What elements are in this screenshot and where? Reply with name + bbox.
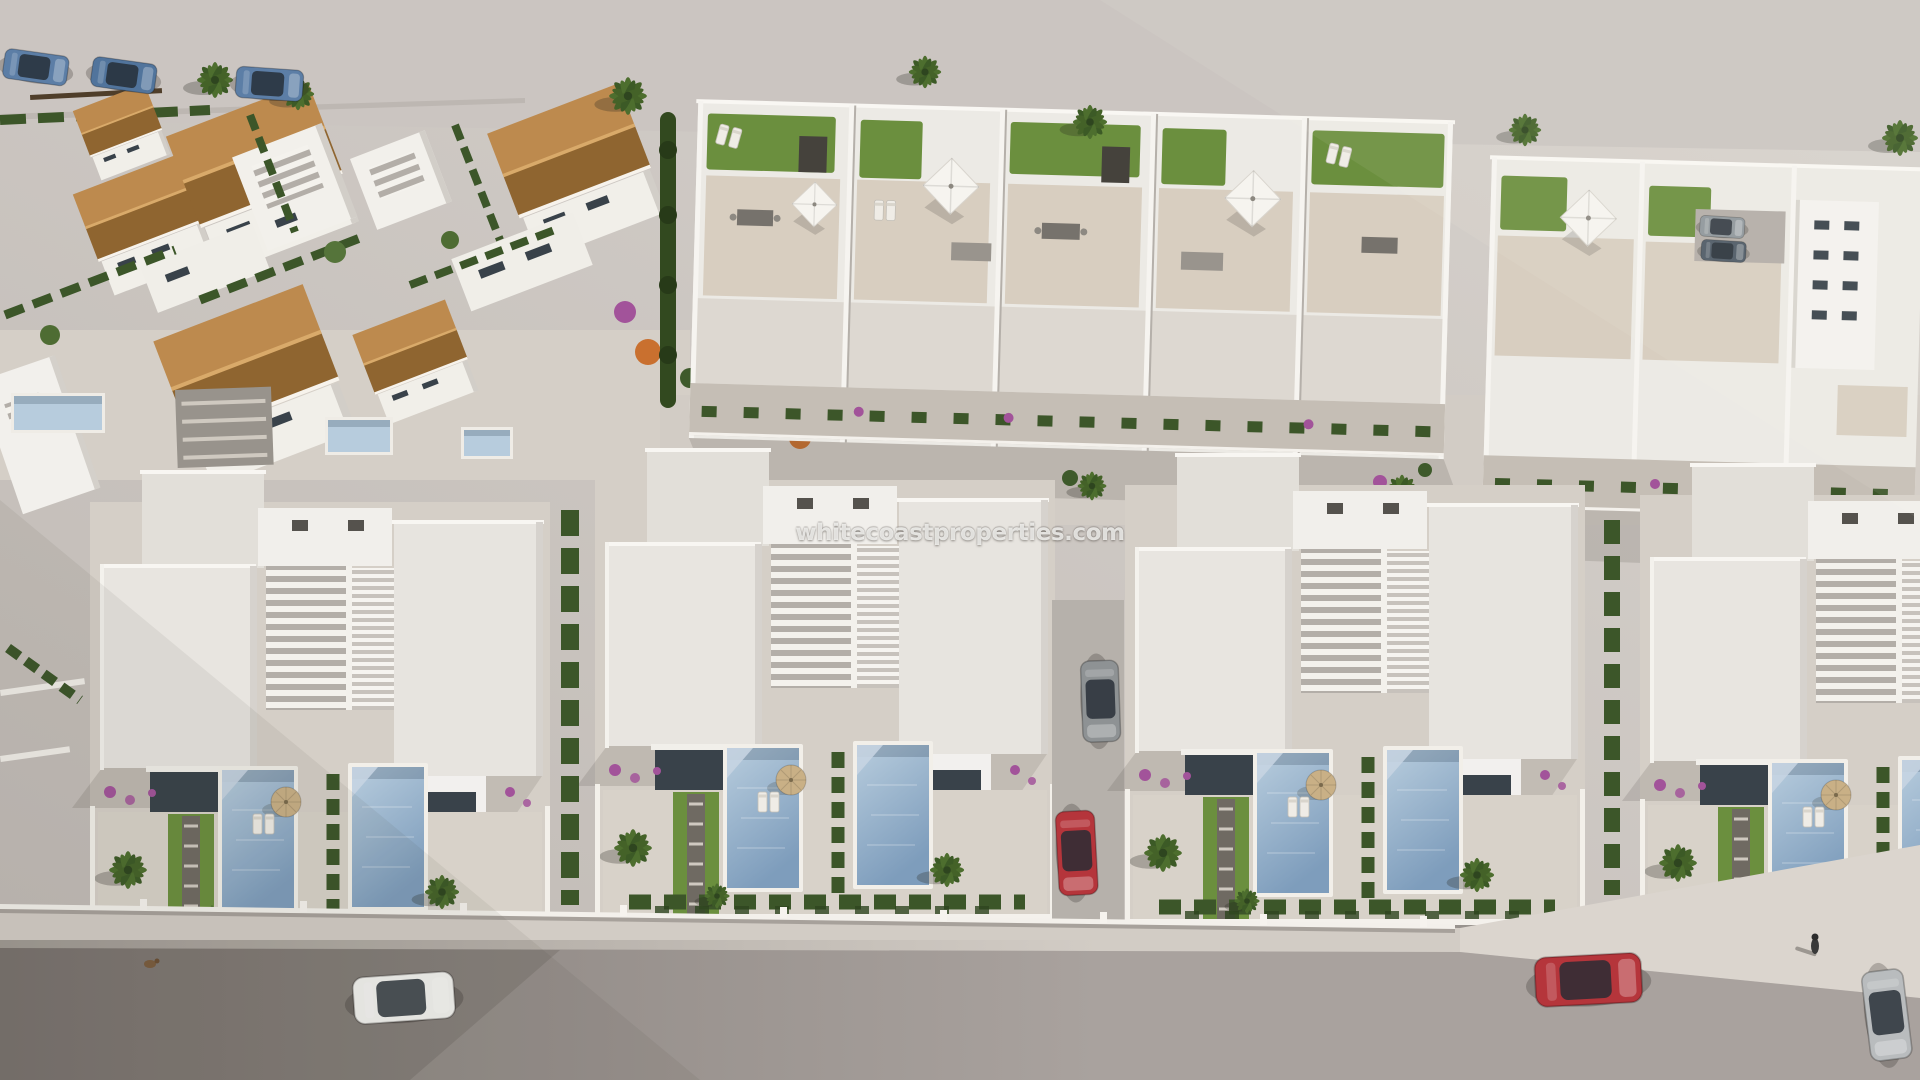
villa-block-2 [577, 448, 1055, 923]
plunge-pool-1 [11, 393, 105, 433]
plunge-pool-3 [461, 427, 513, 459]
cypress-band [659, 112, 677, 408]
red-car-road [1525, 952, 1653, 1010]
villa-block-3 [1107, 453, 1585, 928]
paver-path [175, 387, 274, 468]
grey-car-driveway [1079, 653, 1121, 750]
aerial-render: whitecoastproperties.com [0, 0, 1920, 1080]
plunge-pool-2 [325, 417, 393, 455]
blue-car-3 [229, 66, 310, 104]
red-car-driveway [1053, 803, 1099, 904]
render-scene [0, 0, 1920, 1080]
